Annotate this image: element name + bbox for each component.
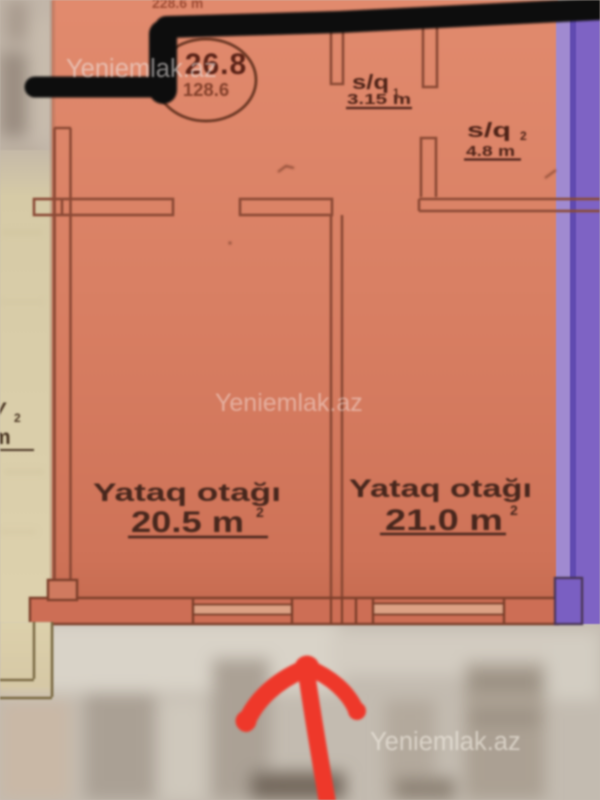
svg-text:2: 2 — [510, 502, 518, 518]
svg-text:3.15 m: 3.15 m — [347, 92, 411, 108]
svg-text:2: 2 — [520, 129, 527, 143]
svg-text:s/q: s/q — [352, 72, 389, 94]
svg-text:2: 2 — [256, 504, 264, 520]
svg-text:2: 2 — [14, 411, 21, 425]
svg-text:Yataq otağı: Yataq otağı — [93, 479, 281, 507]
svg-text:m: m — [0, 426, 11, 449]
svg-text:Yataq otağı: Yataq otağı — [349, 475, 532, 503]
svg-text:4.8 m: 4.8 m — [466, 144, 515, 160]
svg-text:228.6 m: 228.6 m — [152, 0, 203, 11]
svg-text:s/q: s/q — [467, 119, 511, 142]
svg-text:Yeniemlak.az: Yeniemlak.az — [66, 55, 217, 83]
svg-text:Yeniemlak.az: Yeniemlak.az — [215, 389, 363, 417]
svg-text:20.5 m: 20.5 m — [131, 506, 244, 539]
svg-text:21.0 m: 21.0 m — [385, 504, 503, 537]
svg-text:Yeniemlak.az: Yeniemlak.az — [370, 728, 521, 756]
